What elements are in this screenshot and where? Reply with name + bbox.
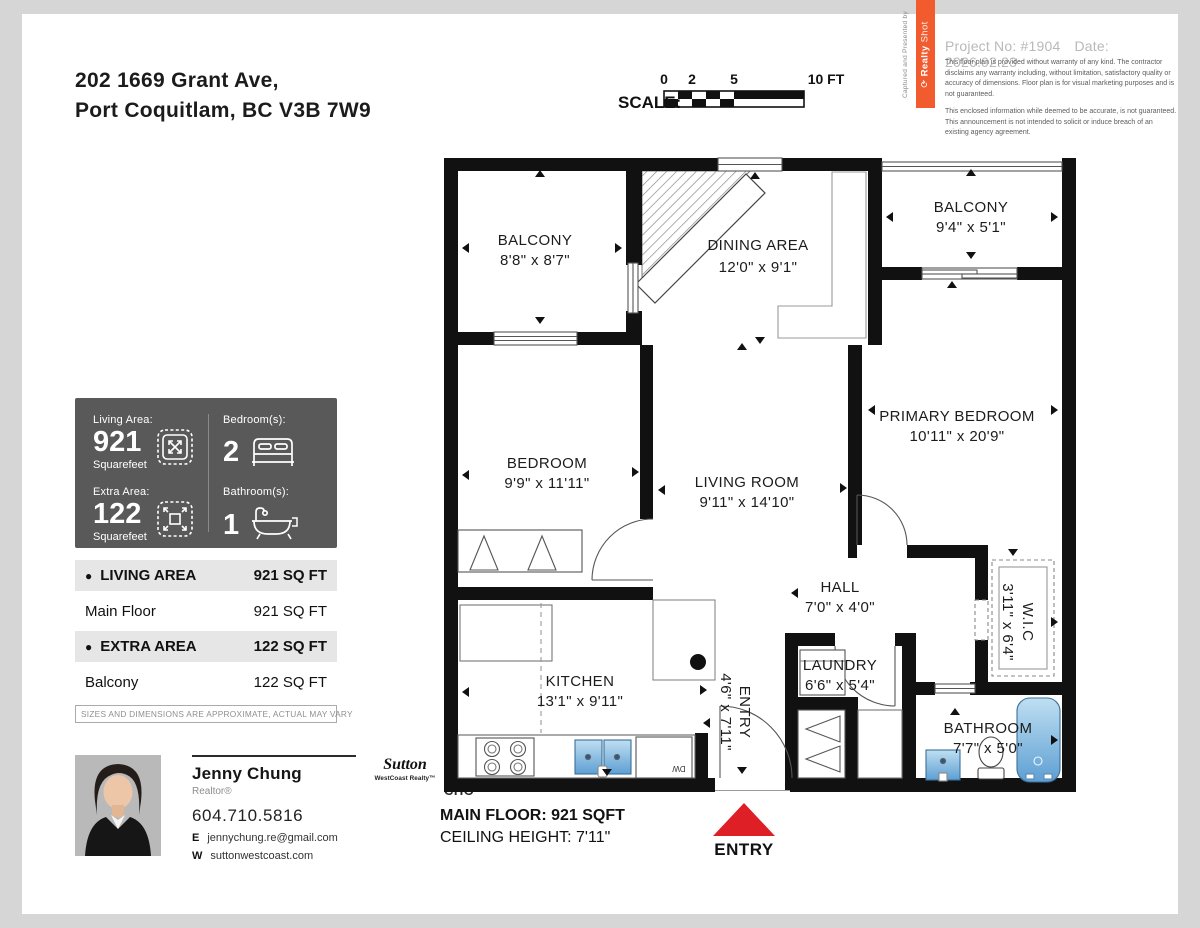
room-dims: 9'11" x 14'10"	[699, 494, 794, 511]
bathrooms-stat: Bathroom(s): 1	[223, 486, 300, 547]
living-area-unit: Squarefeet	[93, 459, 147, 471]
address-line2: Port Coquitlam, BC V3B 7W9	[75, 96, 371, 126]
room-label: W.I.C	[1019, 603, 1036, 642]
room-dims: 13'1" x 9'11"	[537, 693, 623, 710]
dishwasher-label: DW	[672, 764, 686, 773]
scale-tick-0: 0	[660, 71, 668, 87]
extra-area-stat: Extra Area: 122 Squarefeet	[93, 486, 194, 543]
sutton-sub-label: WestCoast Realty™	[374, 775, 436, 782]
row-value: 921 SQ FT	[254, 603, 327, 620]
sutton-logo: Sutton WestCoast Realty™	[374, 756, 436, 782]
agent-photo	[75, 755, 161, 856]
brand-bold: Realty	[920, 45, 931, 76]
living-area-label: Living Area:	[93, 414, 194, 426]
room-label: PRIMARY BEDROOM	[879, 408, 1034, 425]
scale-bar-graphic: SCALE: 0 2 5 10 FT	[598, 70, 898, 116]
extra-area-header-row: ●EXTRA AREA 122 SQ FT	[75, 631, 337, 662]
website-label: W	[192, 850, 202, 862]
entry-arrow-icon	[713, 803, 775, 836]
row-name: Main Floor	[85, 603, 156, 620]
room-label: BALCONY	[934, 199, 1009, 216]
stats-divider	[208, 414, 209, 532]
living-area-stat: Living Area: 921 Squarefeet	[93, 414, 194, 471]
living-area-value: 921	[93, 428, 147, 457]
room-label: BATHROOM	[944, 720, 1033, 737]
room-dims: 9'9" x 11'11"	[504, 475, 589, 492]
disclaimer-2: This enclosed information while deemed t…	[945, 107, 1177, 139]
bathrooms-value: 1	[223, 511, 239, 540]
agent-email-row: E jennychung.re@gmail.com	[192, 832, 462, 844]
row-value: 122 SQ FT	[254, 674, 327, 691]
room-dims: 7'7" x 5'0"	[953, 740, 1023, 757]
disclaimer-block: This floor plan is provided without warr…	[945, 58, 1177, 139]
dimensions-note: SIZES AND DIMENSIONS ARE APPROXIMATE, AC…	[75, 705, 337, 723]
room-dims: 3'11" x 6'4"	[999, 583, 1016, 661]
bullet-icon: ●	[85, 569, 92, 583]
room-label: KITCHEN	[546, 673, 615, 690]
stats-panel: Living Area: 921 Squarefeet Extra Area:	[75, 398, 337, 548]
living-area-header-row: ●LIVING AREA 921 SQ FT	[75, 560, 337, 591]
bedrooms-label: Bedroom(s):	[223, 414, 298, 426]
agent-email: jennychung.re@gmail.com	[207, 832, 337, 844]
room-dims: 7'0" x 4'0"	[805, 599, 875, 616]
room-dims: 4'6" x 7'11"	[717, 673, 734, 751]
bed-icon	[248, 432, 298, 473]
floorplan-document: { "address": { "line1": "202 1669 Grant …	[0, 0, 1200, 928]
row-name: Balcony	[85, 674, 138, 691]
room-label: LAUNDRY	[803, 657, 877, 674]
scale-tick-2: 2	[688, 71, 696, 87]
room-label: HALL	[820, 579, 859, 596]
document-page: 202 1669 Grant Ave, Port Coquitlam, BC V…	[22, 14, 1178, 914]
bathtub-icon	[248, 504, 300, 547]
bathrooms-label: Bathroom(s):	[223, 486, 300, 498]
extra-area-label: Extra Area:	[93, 486, 194, 498]
extra-area-icon	[156, 500, 194, 543]
extra-header-total: 122 SQ FT	[254, 638, 327, 655]
realtyshot-ribbon: ⟳RealtyShot	[916, 0, 935, 108]
living-header-total: 921 SQ FT	[254, 567, 327, 584]
project-number: Project No: #1904	[945, 38, 1060, 54]
table-row: Main Floor 921 SQ FT	[75, 591, 337, 631]
table-row: Balcony 122 SQ FT	[75, 662, 337, 702]
room-dims: 12'0" x 9'1"	[719, 259, 798, 276]
expand-icon	[156, 428, 194, 471]
plan-footer: MAIN FLOOR: 921 SQFT CEILING HEIGHT: 7'1…	[440, 805, 625, 848]
ribbon-caption: Captured and Presented by	[898, 0, 912, 108]
ceiling-height: CEILING HEIGHT: 7'11"	[440, 827, 625, 849]
extra-header-label: EXTRA AREA	[100, 638, 196, 655]
entry-label: ENTRY	[698, 840, 790, 860]
room-dims: 10'11" x 20'9"	[909, 428, 1004, 445]
agent-card: Jenny Chung Realtor® Sutton WestCoast Re…	[192, 755, 462, 862]
scale-checker	[664, 91, 804, 107]
room-label: ENTRY	[736, 686, 753, 739]
bedrooms-stat: Bedroom(s): 2	[223, 414, 298, 473]
scale-bar: SCALE: 0 2 5 10 FT	[598, 70, 898, 121]
disclaimer-1: This floor plan is provided without warr…	[945, 58, 1177, 100]
room-dims: 6'6" x 5'4"	[805, 677, 875, 694]
sutton-wordmark: Sutton	[374, 756, 436, 774]
extra-area-unit: Squarefeet	[93, 531, 147, 543]
living-header-label: LIVING AREA	[100, 567, 196, 584]
room-dims: 9'4" x 5'1"	[936, 219, 1006, 236]
room-label: LIVING ROOM	[695, 474, 799, 491]
scale-tick-10: 10 FT	[808, 71, 845, 87]
agent-title: Realtor®	[192, 786, 462, 797]
agent-website: suttonwestcoast.com	[210, 850, 313, 862]
area-table: ●LIVING AREA 921 SQ FT Main Floor 921 SQ…	[75, 560, 337, 723]
bedrooms-value: 2	[223, 438, 239, 467]
property-address: 202 1669 Grant Ave, Port Coquitlam, BC V…	[75, 66, 371, 127]
email-label: E	[192, 832, 199, 844]
floor-plan: BALCONY 8'8" x 8'7" DINING AREA 12'0" x …	[440, 150, 1080, 810]
agent-website-row: W suttonwestcoast.com	[192, 850, 462, 862]
bullet-icon: ●	[85, 640, 92, 654]
realtyshot-logo-icon: ⟳	[920, 79, 931, 87]
room-dims: 8'8" x 8'7"	[500, 252, 570, 269]
agent-phone: 604.710.5816	[192, 806, 462, 826]
agent-divider	[192, 755, 356, 757]
extra-area-value: 122	[93, 500, 147, 529]
address-line1: 202 1669 Grant Ave,	[75, 66, 371, 96]
room-label: DINING AREA	[707, 237, 808, 254]
room-label: BEDROOM	[507, 455, 587, 472]
scale-tick-5: 5	[730, 71, 738, 87]
brand-light: Shot	[920, 21, 931, 42]
room-label: BALCONY	[498, 232, 573, 249]
main-floor-area: MAIN FLOOR: 921 SQFT	[440, 805, 625, 827]
